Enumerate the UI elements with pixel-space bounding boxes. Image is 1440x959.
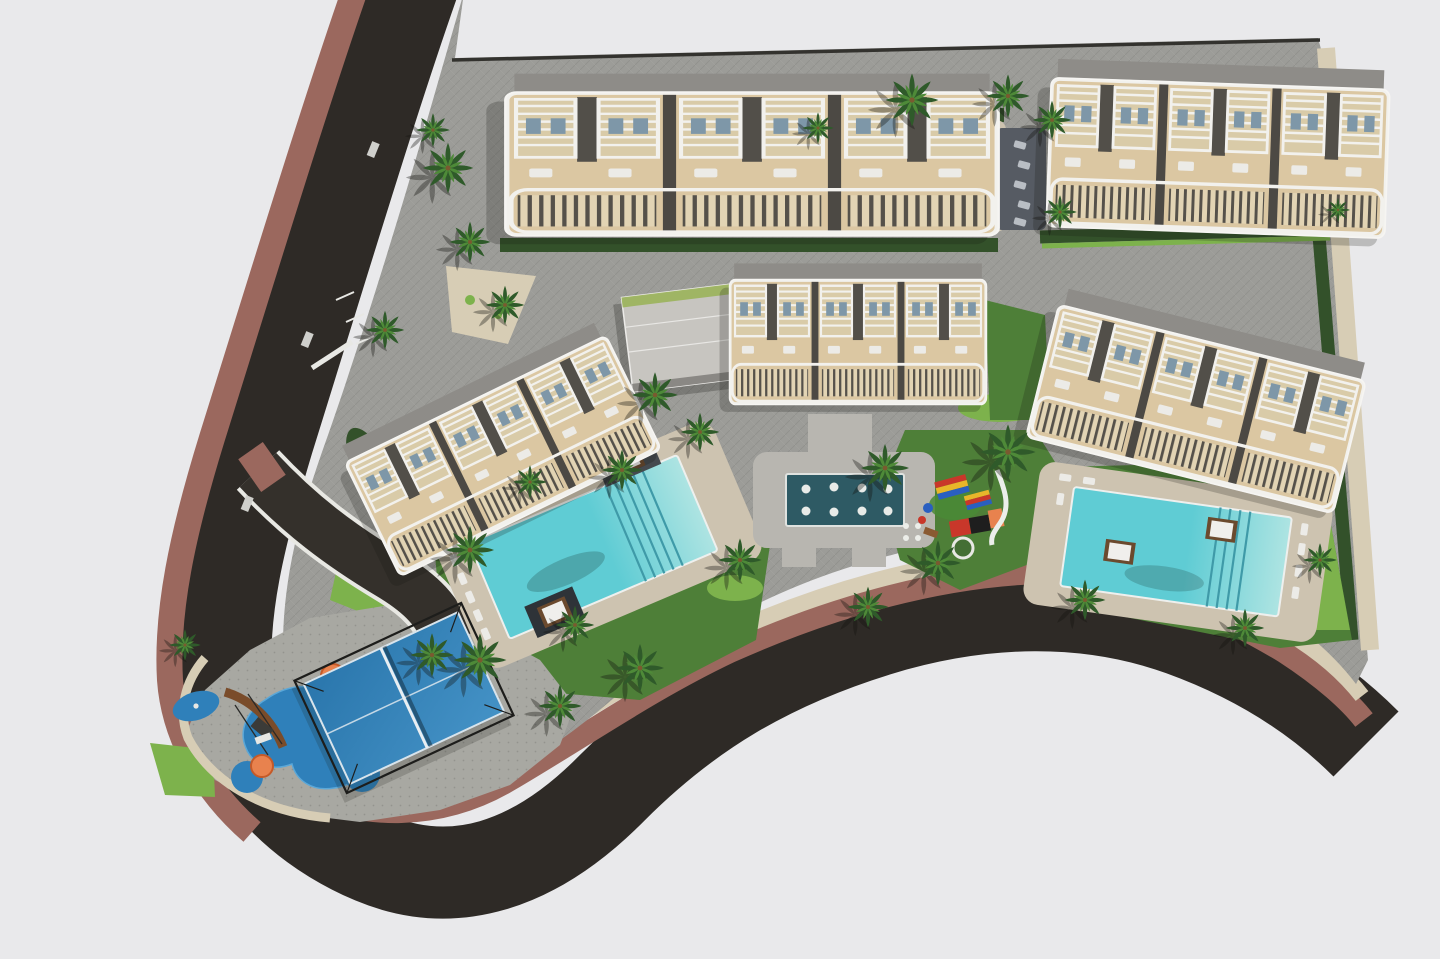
apartment-block-middle-center [720,263,987,411]
play-disc [251,755,273,777]
fountain-deck-stub [782,545,816,567]
site-plan-render [0,0,1440,959]
daybed [1103,539,1136,565]
play-dot [923,503,933,513]
daybed [1205,517,1238,543]
fountain-deck-arm [808,414,872,462]
play-dot [918,516,926,524]
shrub [465,295,475,305]
spinner [193,703,198,708]
play-ring [953,538,973,558]
fountain-deck-stub [852,545,886,567]
